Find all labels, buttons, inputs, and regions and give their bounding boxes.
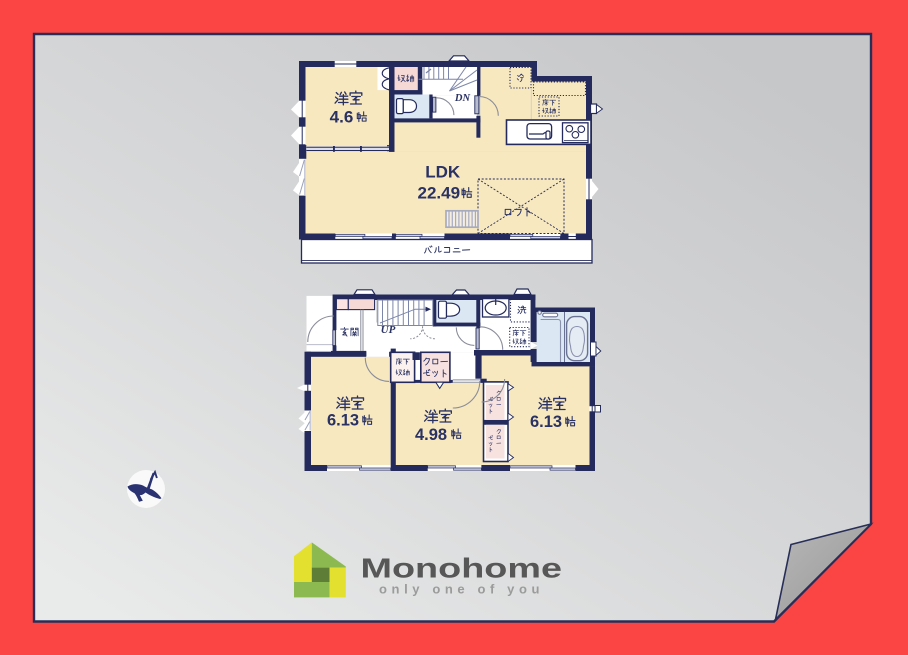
- svg-text:4.98: 4.98: [415, 426, 447, 444]
- svg-text:22.49: 22.49: [418, 184, 461, 203]
- svg-text:only one of you: only one of you: [379, 582, 544, 597]
- svg-text:DN: DN: [454, 93, 471, 104]
- svg-text:4.6: 4.6: [330, 107, 354, 126]
- svg-text:LDK: LDK: [425, 163, 461, 182]
- svg-text:6.13: 6.13: [530, 413, 562, 431]
- svg-text:6.13: 6.13: [327, 412, 359, 430]
- svg-text:UP: UP: [381, 324, 396, 336]
- svg-text:Monohome: Monohome: [361, 553, 562, 584]
